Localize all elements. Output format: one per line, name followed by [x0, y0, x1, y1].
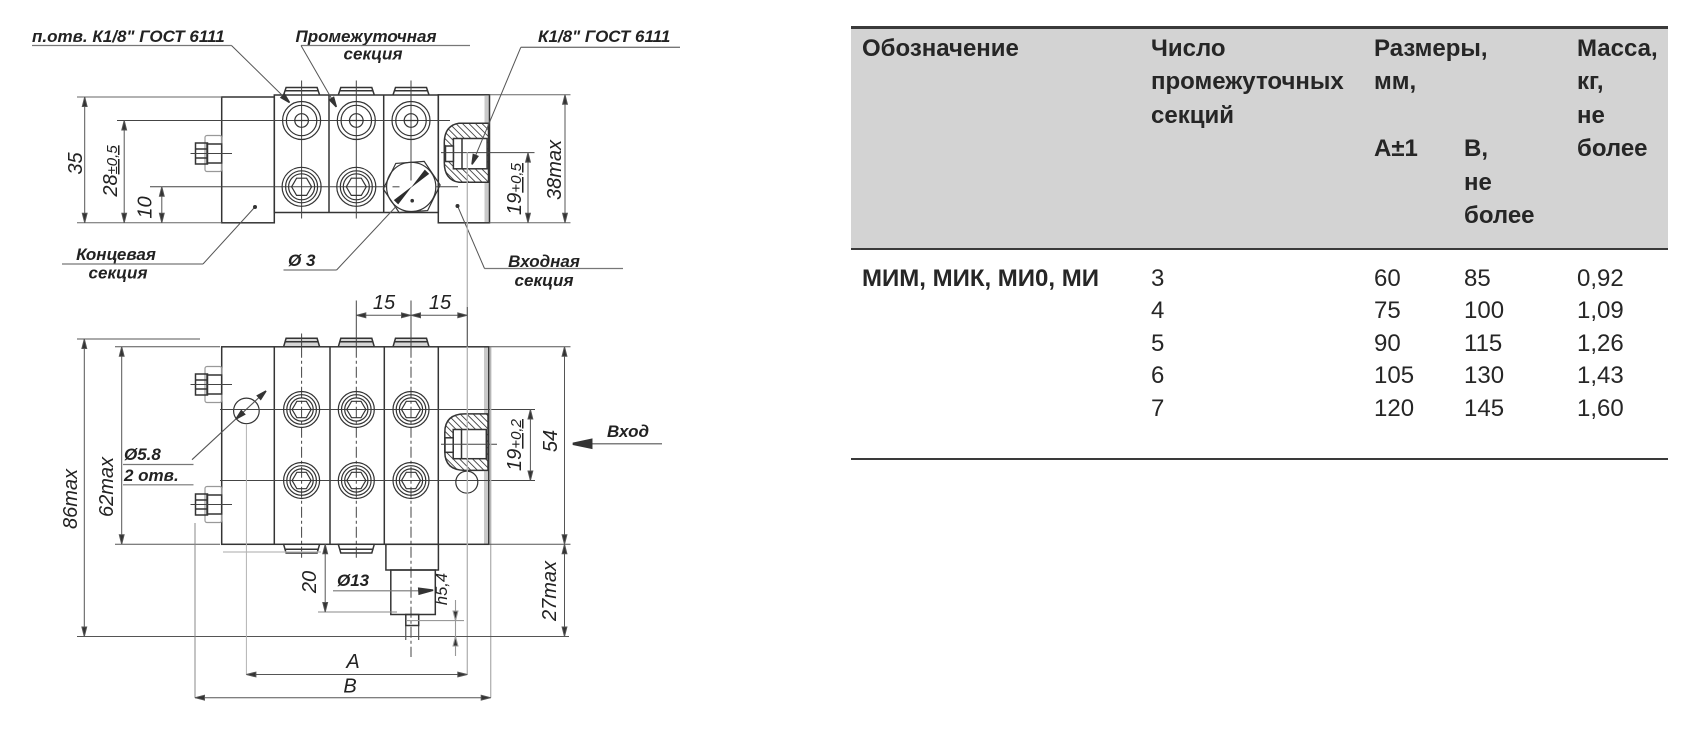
svg-text:62max: 62max [96, 456, 118, 517]
svg-text:35: 35 [65, 152, 87, 175]
svg-text:К1/8" ГОСТ 6111: К1/8" ГОСТ 6111 [538, 27, 670, 46]
svg-text:20: 20 [299, 571, 321, 594]
svg-text:38max: 38max [544, 139, 566, 200]
svg-text:19+0,2: 19+0,2 [504, 418, 526, 471]
svg-text:Ø 3: Ø 3 [288, 251, 316, 270]
svg-text:2 отв.: 2 отв. [123, 466, 179, 485]
svg-text:19+0,5: 19+0,5 [504, 162, 526, 215]
svg-text:A: A [345, 651, 359, 673]
svg-text:15: 15 [429, 292, 452, 314]
svg-text:15: 15 [373, 292, 396, 314]
svg-text:п.отв. К1/8" ГОСТ 6111: п.отв. К1/8" ГОСТ 6111 [32, 27, 225, 46]
svg-text:секция: секция [344, 45, 403, 64]
svg-text:Вход: Вход [607, 422, 649, 441]
svg-text:Ø13: Ø13 [337, 571, 370, 590]
svg-text:B: B [343, 676, 356, 698]
svg-text:Ø5.8: Ø5.8 [124, 445, 161, 464]
svg-text:10: 10 [135, 196, 157, 218]
svg-text:86max: 86max [60, 468, 82, 529]
svg-text:27max: 27max [539, 560, 561, 622]
svg-text:секция: секция [89, 264, 148, 283]
svg-text:Концевая: Концевая [76, 245, 156, 264]
svg-text:секция: секция [515, 271, 574, 290]
svg-text:54: 54 [540, 430, 562, 452]
svg-text:28±0,5: 28±0,5 [100, 145, 122, 198]
svg-text:h5,4: h5,4 [433, 573, 451, 605]
svg-text:Промежуточная: Промежуточная [295, 27, 436, 46]
